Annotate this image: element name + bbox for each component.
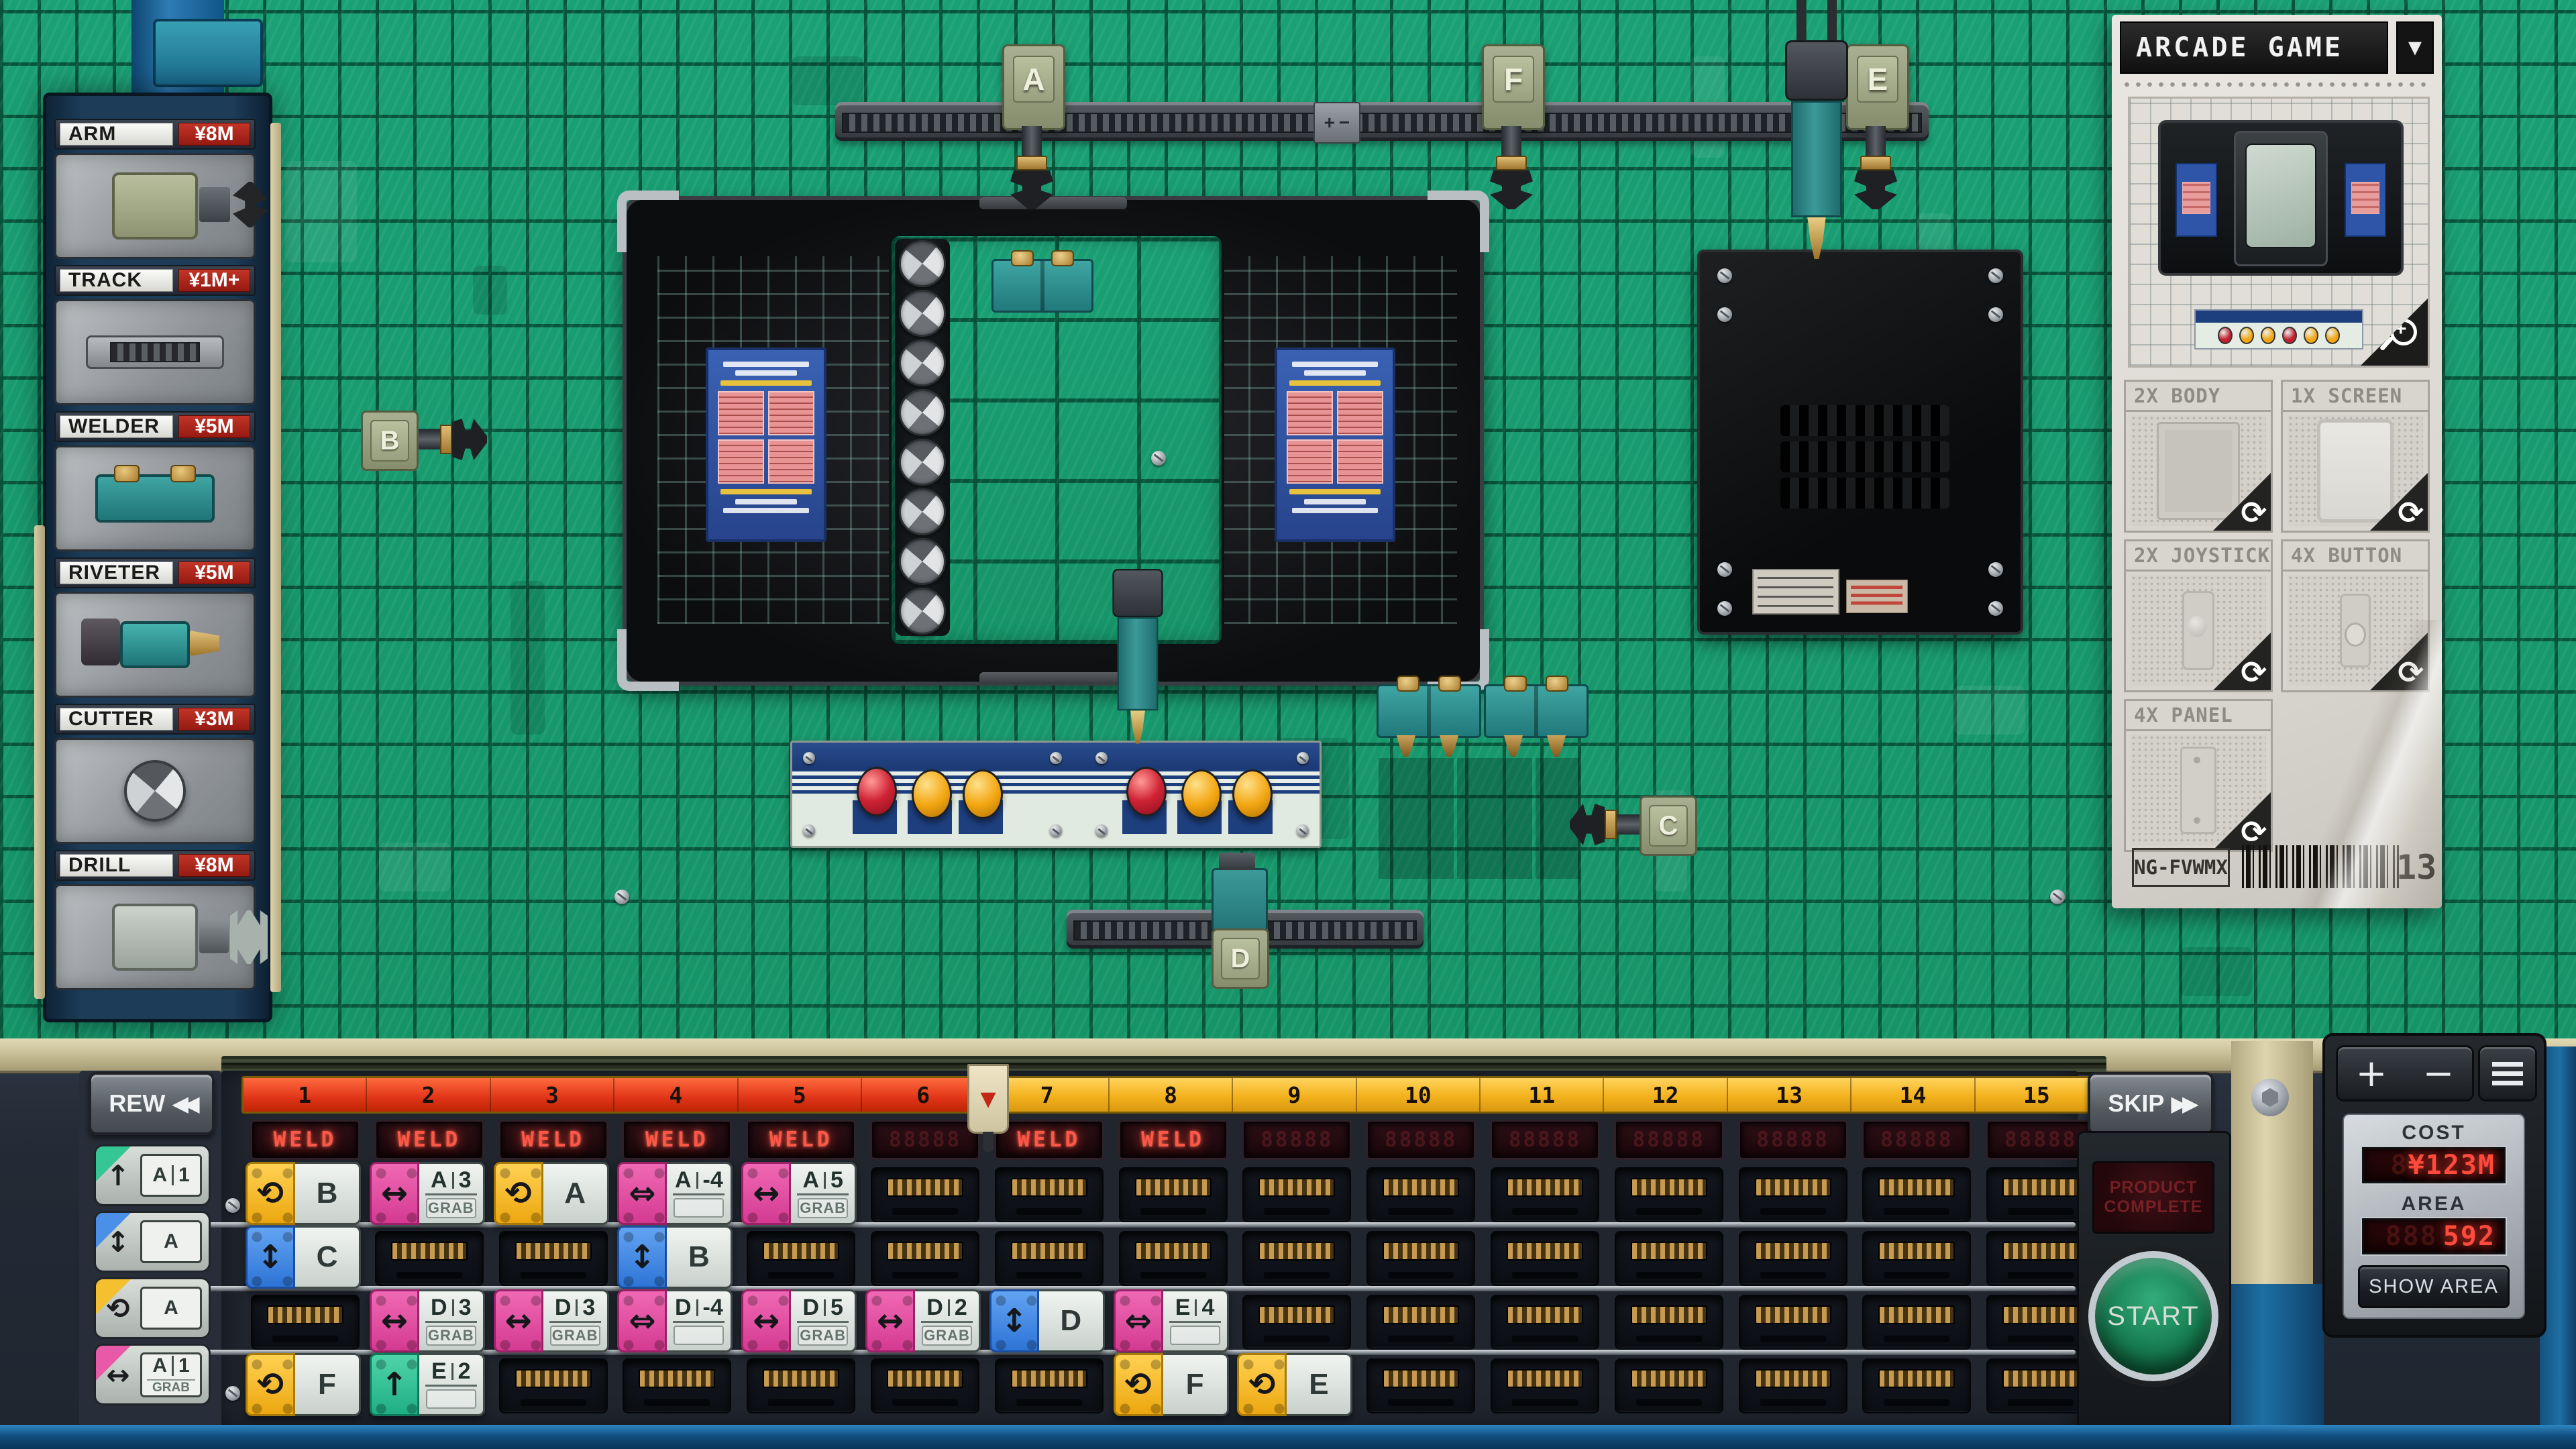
welder-part[interactable] [991, 259, 1093, 313]
command-socket[interactable] [1615, 1167, 1723, 1222]
deck-pillar [2231, 1041, 2313, 1288]
arm-part-icon [112, 172, 198, 239]
block-target-label: B [667, 1228, 731, 1287]
command-socket[interactable] [871, 1358, 979, 1413]
floor-tile-variation [2180, 947, 2252, 996]
suction-arm [1489, 126, 1534, 209]
command-socket[interactable] [1862, 1295, 1971, 1350]
timeline-ruler[interactable]: 123456789101112131415 [241, 1076, 2101, 1114]
shop-slot-riveter[interactable]: RIVETER¥5M [54, 557, 256, 697]
command-block-rotate-b[interactable]: ⟲B [246, 1162, 361, 1225]
floor-tile-variation [1953, 686, 2025, 735]
block-target-label: D-4 [673, 1295, 724, 1323]
tray-connector [153, 19, 263, 87]
cutter-disc [899, 339, 946, 386]
shop-slot-arm[interactable]: ARM¥8M [54, 119, 256, 258]
grab-move-icon: ↔ [96, 1358, 140, 1391]
block-target-label: E2 [425, 1358, 477, 1387]
command-socket[interactable] [375, 1231, 484, 1286]
order-part-label: 2X BODY [2126, 382, 2271, 412]
station-d[interactable]: D [1212, 928, 1269, 989]
command-block-grab-d[interactable]: ↔D2GRAB [865, 1289, 981, 1352]
suction-arm [1010, 126, 1054, 209]
block-mode-label [674, 1326, 724, 1345]
shop-slot-welder[interactable]: WELDER¥5M [54, 411, 256, 551]
suction-arm [416, 419, 487, 460]
riveter-cap [1112, 569, 1163, 617]
ruler-number: 1 [244, 1078, 367, 1112]
command-block-shift-a[interactable]: ⇔A-4 [617, 1162, 733, 1225]
board-handle [979, 672, 1127, 684]
suction-cup-icon [1010, 170, 1053, 209]
vertical-move-icon: ↕ [989, 1289, 1039, 1352]
command-led-13: 88888 [1740, 1122, 1846, 1158]
command-socket[interactable] [1119, 1231, 1228, 1286]
order-part-label: 2X JOYSTICK [2126, 541, 2271, 572]
command-socket[interactable] [1119, 1167, 1228, 1222]
minus-icon: − [2423, 1052, 2455, 1095]
suction-cup-icon [1570, 804, 1605, 845]
command-block-vertical-c[interactable]: ↕C [246, 1226, 361, 1289]
back-panel-part[interactable] [1697, 250, 2023, 635]
rotate-icon: ⟲ [246, 1353, 295, 1416]
preview-button-dot [2239, 327, 2254, 344]
part-price: ¥5M [178, 415, 250, 438]
lift-icon: ↑ [370, 1353, 419, 1416]
command-block-rotate-e[interactable]: ⟲E [1237, 1353, 1352, 1416]
button-panel-part[interactable] [790, 741, 1322, 848]
block-target-label: D5 [797, 1295, 849, 1323]
plus-icon: + [2356, 1052, 2387, 1095]
skip-button[interactable]: SKIP ▶▶ [2088, 1072, 2214, 1135]
product-complete-led: PRODUCT COMPLETE [2092, 1161, 2214, 1234]
area-readout: 888 592 [2362, 1218, 2506, 1254]
command-block-vertical-d[interactable]: ↕D [989, 1289, 1105, 1352]
welder-part[interactable] [1484, 684, 1589, 738]
command-socket[interactable] [1491, 1358, 1599, 1413]
preview-button-panel [2194, 309, 2363, 350]
suction-cup-icon [1854, 170, 1897, 209]
part-name: CUTTER [60, 708, 173, 731]
block-target-label: F [295, 1355, 359, 1414]
ruler-number: 8 [1110, 1078, 1233, 1112]
block-target-label: A-4 [673, 1167, 724, 1195]
spec-label [1752, 569, 1839, 614]
command-block-shift-d[interactable]: ⇔D-4 [617, 1289, 733, 1352]
vent-row [1780, 478, 1949, 508]
ruler-number: 15 [1976, 1078, 2099, 1112]
command-block-grab-d[interactable]: ↔D5GRAB [741, 1289, 857, 1352]
floor-screw [2050, 890, 2065, 904]
cutter-disc [899, 290, 946, 337]
command-socket[interactable] [1491, 1167, 1599, 1222]
perforation [2121, 80, 2432, 89]
start-panel: PRODUCT COMPLETE START [2077, 1131, 2231, 1430]
order-part-label: 1X SCREEN [2283, 382, 2428, 412]
preview-button-dot [2218, 327, 2233, 344]
command-socket[interactable] [747, 1358, 855, 1413]
magnifier-icon [2390, 319, 2417, 345]
command-led-8: WELD [1120, 1122, 1226, 1158]
part-preview[interactable] [54, 445, 256, 551]
command-block-grab-a[interactable]: ↔A5GRAB [741, 1162, 857, 1225]
command-socket[interactable] [1366, 1231, 1475, 1286]
zoom-rocker[interactable]: + − [2336, 1045, 2474, 1102]
zoom-out-button[interactable]: − [2405, 1047, 2472, 1099]
board-corner-bracket [617, 191, 679, 252]
command-socket[interactable] [1739, 1231, 1847, 1286]
part-name: RIVETER [60, 561, 173, 584]
block-target-label: F [1163, 1355, 1227, 1414]
block-mode-label: GRAB [798, 1326, 848, 1346]
command-led-9: 88888 [1244, 1122, 1350, 1158]
order-part-panel[interactable]: 4X PANEL⟳ [2124, 699, 2273, 852]
part-name: ARM [60, 123, 173, 146]
part-preview[interactable] [54, 738, 256, 844]
grab-move-icon: ↔ [741, 1289, 791, 1352]
cost-value: ¥123M [2408, 1150, 2495, 1181]
cutter-disc [899, 588, 946, 635]
preview-button-dot [2261, 327, 2275, 344]
command-socket[interactable] [1242, 1295, 1351, 1350]
command-socket[interactable] [747, 1231, 855, 1286]
command-block-grab-a[interactable]: ↔A3GRAB [370, 1162, 485, 1225]
command-socket[interactable] [1366, 1295, 1475, 1350]
floor-screw [614, 890, 629, 904]
station-f[interactable]: F [1482, 44, 1545, 130]
cost-readout: 8 ¥123M [2362, 1147, 2506, 1183]
part-preview[interactable] [54, 884, 256, 990]
station-c[interactable]: C [1640, 796, 1697, 856]
ruler-number: 4 [614, 1078, 738, 1112]
station-letter: B [370, 420, 409, 462]
command-led-1: WELD [252, 1122, 358, 1158]
block-mode-label: GRAB [798, 1198, 848, 1218]
show-area-label: SHOW AREA [2369, 1276, 2499, 1298]
vertical-move-icon: ↕ [96, 1226, 140, 1258]
conveyor-track-top[interactable] [835, 102, 1929, 141]
shift-move-icon: ⇔ [617, 1289, 667, 1352]
block-target-label: A5 [797, 1167, 849, 1195]
order-part-screen[interactable]: 1X SCREEN⟳ [2281, 380, 2430, 533]
floor-tile-variation [473, 266, 507, 315]
order-part-label: 4X BUTTON [2283, 541, 2428, 572]
preview-screen [2234, 131, 2328, 266]
refresh-icon[interactable]: ⟳ [2241, 814, 2267, 850]
riv-part-icon [120, 621, 190, 668]
station-a[interactable]: A [1002, 44, 1065, 130]
rotate-icon: ⟲ [494, 1162, 543, 1225]
rewind-icon: ◀◀ [172, 1091, 194, 1116]
command-socket[interactable] [995, 1167, 1104, 1222]
ruler-number: 12 [1604, 1078, 1727, 1112]
vertical-move-icon: ↕ [246, 1226, 295, 1289]
command-led-14: 88888 [1864, 1122, 1970, 1158]
cutter-disc [899, 240, 946, 287]
command-socket[interactable] [995, 1358, 1104, 1413]
riveter-tip [1805, 217, 1828, 259]
block-mode-label [674, 1198, 724, 1218]
welder-part[interactable] [1377, 684, 1481, 738]
refresh-icon[interactable]: ⟳ [2398, 494, 2424, 531]
command-socket[interactable] [1739, 1358, 1847, 1413]
part-price: ¥5M [178, 561, 250, 584]
vertical-move-icon: ↕ [617, 1226, 667, 1289]
command-socket[interactable] [1491, 1295, 1599, 1350]
rotate-icon: ⟲ [246, 1162, 295, 1225]
board-corner-bracket [1428, 191, 1489, 252]
command-led-6: 88888 [872, 1122, 978, 1158]
ruler-number: 9 [1233, 1078, 1356, 1112]
zoom-corner[interactable] [2361, 299, 2428, 366]
yellow-button-part [1181, 769, 1222, 819]
command-block-shift-e[interactable]: ⇔E4 [1114, 1289, 1229, 1352]
block-target-label: D3 [425, 1295, 477, 1323]
suction-cup-icon [452, 419, 487, 460]
palette-chip-rotate[interactable]: ⟲A [94, 1277, 211, 1339]
command-socket[interactable] [1615, 1231, 1723, 1286]
product-preview[interactable] [2128, 97, 2430, 368]
refresh-icon[interactable]: ⟳ [2241, 654, 2267, 690]
order-part-label: 4X PANEL [2126, 701, 2271, 731]
blueprint-poster [1275, 347, 1395, 542]
command-led-12: 88888 [1616, 1122, 1722, 1158]
palette-chip-grab[interactable]: ↔A1GRAB [94, 1344, 211, 1405]
skip-label: SKIP [2108, 1089, 2164, 1118]
part-name: TRACK [60, 269, 173, 292]
track-part-icon [86, 335, 224, 369]
command-socket[interactable] [499, 1231, 608, 1286]
command-block-grab-d[interactable]: ↔D3GRAB [370, 1289, 485, 1352]
drill-part-icon [112, 904, 198, 971]
command-socket[interactable] [1739, 1295, 1847, 1350]
command-socket[interactable] [1739, 1167, 1847, 1222]
part-name: WELDER [60, 415, 173, 438]
grab-move-icon: ↔ [741, 1162, 791, 1225]
screen-ghost-icon [2317, 419, 2394, 523]
block-target-label: A [543, 1164, 607, 1223]
part-preview[interactable] [54, 153, 256, 259]
vent-row [1780, 441, 1949, 472]
body-ghost-icon [2157, 422, 2240, 520]
preview-button-dot [2304, 327, 2318, 344]
command-block-rotate-f[interactable]: ⟲F [246, 1353, 361, 1416]
grab-move-icon: ↔ [494, 1289, 543, 1352]
command-socket[interactable] [995, 1231, 1104, 1286]
floor-screw [1151, 451, 1166, 466]
block-mode-label [426, 1389, 476, 1409]
red-button-part [1126, 767, 1167, 816]
shift-move-icon: ⇔ [617, 1162, 667, 1225]
grab-move-icon: ↔ [370, 1289, 419, 1352]
cut-part-icon [124, 760, 186, 822]
command-block-grab-d[interactable]: ↔D3GRAB [494, 1289, 609, 1352]
stick-ghost-icon [2182, 591, 2214, 670]
track-coupler[interactable]: +− [1313, 102, 1360, 144]
deck-base [0, 1425, 2576, 1449]
part-price: ¥3M [178, 708, 250, 731]
command-socket[interactable] [1615, 1295, 1723, 1350]
hex-bolt [2251, 1079, 2289, 1116]
shop-slot-track[interactable]: TRACK¥1M+ [54, 265, 256, 405]
order-title: ARCADE GAME [2120, 21, 2388, 74]
ruler-number: 3 [491, 1078, 614, 1112]
rewind-button[interactable]: REW ◀◀ [89, 1072, 215, 1135]
panel-ghost-icon [2180, 747, 2216, 834]
factory-game-screen: +− + AFEBCD ARM¥8MTRACK¥1M+WELDER¥5MRIVE… [0, 0, 2576, 1449]
ruler-number: 14 [1851, 1078, 1975, 1112]
start-button[interactable]: START [2088, 1251, 2218, 1381]
rotate-icon: ⟲ [96, 1292, 140, 1325]
part-price: ¥8M [178, 123, 250, 146]
block-target-label: E4 [1169, 1295, 1221, 1323]
block-mode-label: GRAB [426, 1326, 476, 1346]
cutter-disc [899, 488, 946, 535]
command-socket[interactable] [251, 1295, 360, 1350]
grab-move-icon: ↔ [370, 1162, 419, 1225]
ruler-number: 10 [1357, 1078, 1481, 1112]
station-letter: D [1221, 938, 1260, 979]
station-b[interactable]: B [361, 411, 419, 471]
command-block-rotate-f[interactable]: ⟲F [1114, 1353, 1229, 1416]
order-card[interactable]: ARCADE GAME ▼ 2X BODY⟳1X SCREEN⟳2X JOYST… [2112, 15, 2442, 908]
yellow-button-part [912, 769, 952, 819]
station-letter: C [1649, 805, 1688, 847]
playhead-marker-icon: ▼ [980, 1087, 996, 1111]
riveter-part[interactable] [1113, 569, 1163, 744]
block-target-label: E [1287, 1355, 1350, 1414]
part-preview[interactable] [54, 299, 256, 405]
board-corner-bracket [617, 629, 679, 691]
command-socket[interactable] [499, 1358, 608, 1413]
preview-board [2158, 120, 2404, 276]
weld-part-icon [95, 474, 215, 523]
show-area-button[interactable]: SHOW AREA [2358, 1265, 2510, 1308]
command-socket[interactable] [1615, 1358, 1723, 1413]
block-target-label: D3 [549, 1295, 601, 1323]
command-socket[interactable] [1491, 1231, 1599, 1286]
part-name: DRILL [60, 854, 173, 877]
station-d-machine[interactable] [1212, 868, 1268, 931]
skip-icon: ▶▶ [2171, 1091, 2193, 1116]
cutter-disc [899, 389, 946, 436]
cost-ghost-digits: 8 [2390, 1150, 2408, 1181]
floor-tile-variation [792, 56, 863, 105]
order-code: NG-FVWMX [2132, 848, 2230, 887]
station-letter: E [1857, 56, 1898, 103]
refresh-icon[interactable]: ⟳ [2241, 494, 2267, 531]
command-socket[interactable] [1366, 1167, 1475, 1222]
command-socket[interactable] [1862, 1167, 1971, 1222]
menu-button[interactable] [2478, 1045, 2537, 1102]
command-led-4: WELD [624, 1122, 730, 1158]
command-led-2: WELD [376, 1122, 482, 1158]
area-label: AREA [2401, 1193, 2466, 1216]
block-mode-label: GRAB [550, 1326, 600, 1346]
command-socket[interactable] [871, 1231, 979, 1286]
ruler-number: 11 [1481, 1078, 1604, 1112]
red-button-part [857, 767, 897, 816]
palette-grab-label: GRAB [147, 1379, 195, 1395]
zoom-in-button[interactable]: + [2338, 1047, 2405, 1099]
timeline-playhead[interactable]: ▼ [967, 1064, 1009, 1134]
command-led-7: WELD [996, 1122, 1102, 1158]
suction-arm [1854, 126, 1898, 209]
cutter-disc [899, 538, 946, 585]
station-e[interactable]: E [1846, 44, 1909, 130]
suction-arm [1570, 804, 1641, 845]
order-part-body[interactable]: 2X BODY⟳ [2124, 380, 2273, 533]
preview-button-dot [2282, 327, 2297, 344]
command-socket[interactable] [1366, 1358, 1475, 1413]
command-block-rotate-a[interactable]: ⟲A [494, 1162, 609, 1225]
riveter-body [1791, 101, 1842, 217]
command-block-lift-e[interactable]: ↑E2 [370, 1353, 485, 1416]
paper-fold [2288, 620, 2442, 908]
start-label: START [2107, 1301, 2199, 1332]
block-mode-label: GRAB [426, 1198, 476, 1218]
command-led-11: 88888 [1492, 1122, 1598, 1158]
block-target-label: C [295, 1228, 359, 1287]
command-led-3: WELD [500, 1122, 606, 1158]
yellow-button-part [1232, 769, 1273, 819]
command-socket[interactable] [1242, 1167, 1351, 1222]
shop-slot-cutter[interactable]: CUTTER¥3M [54, 704, 256, 843]
lift-icon: ↑ [96, 1159, 140, 1192]
blueprint-poster [706, 347, 826, 542]
cutter-disc [899, 439, 946, 486]
order-dropdown-button[interactable]: ▼ [2396, 21, 2434, 74]
block-mode-label: GRAB [922, 1326, 972, 1346]
palette-chip-vertical[interactable]: ↕A [94, 1211, 211, 1273]
command-socket[interactable] [871, 1167, 979, 1222]
order-part-stick[interactable]: 2X JOYSTICK⟳ [2124, 539, 2273, 692]
riveter-tip [1128, 710, 1146, 744]
shift-move-icon: ⇔ [1114, 1289, 1163, 1352]
riveter-part[interactable] [1786, 40, 1847, 259]
ruler-number: 13 [1728, 1078, 1851, 1112]
block-target-label: D2 [921, 1295, 973, 1323]
command-socket[interactable] [623, 1358, 731, 1413]
floor-tile-variation [379, 843, 451, 892]
ruler-number: 5 [739, 1078, 862, 1112]
vent-row [1780, 405, 1949, 436]
floor-tile-variation [285, 161, 357, 262]
block-target-label: B [295, 1164, 359, 1223]
grab-move-icon: ↔ [865, 1289, 915, 1352]
rewind-label: REW [109, 1089, 165, 1118]
cost-panel: + − COST 8 ¥123M AREA 888 592 SHOW AREA [2322, 1033, 2546, 1338]
command-socket[interactable] [1242, 1231, 1351, 1286]
command-socket[interactable] [1862, 1231, 1971, 1286]
preview-button-dot [2325, 327, 2340, 344]
part-shop: ARM¥8MTRACK¥1M+WELDER¥5MRIVETER¥5MCUTTER… [43, 93, 272, 1022]
suction-cup-icon [1490, 170, 1533, 209]
part-price: ¥1M+ [178, 269, 250, 292]
ruler-number: 2 [367, 1078, 490, 1112]
part-price: ¥8M [178, 854, 250, 877]
command-block-vertical-b[interactable]: ↕B [617, 1226, 733, 1289]
palette-chip-lift[interactable]: ↑A1 [94, 1144, 211, 1206]
block-mode-label [1170, 1326, 1220, 1345]
command-led-5: WELD [748, 1122, 854, 1158]
warning-sticker [1846, 580, 1908, 613]
block-target-label: A3 [425, 1167, 477, 1195]
part-preview[interactable] [54, 592, 256, 698]
shop-slot-drill[interactable]: DRILL¥8M [54, 850, 256, 989]
cutter-chain[interactable] [895, 239, 950, 636]
command-socket[interactable] [1862, 1358, 1971, 1413]
